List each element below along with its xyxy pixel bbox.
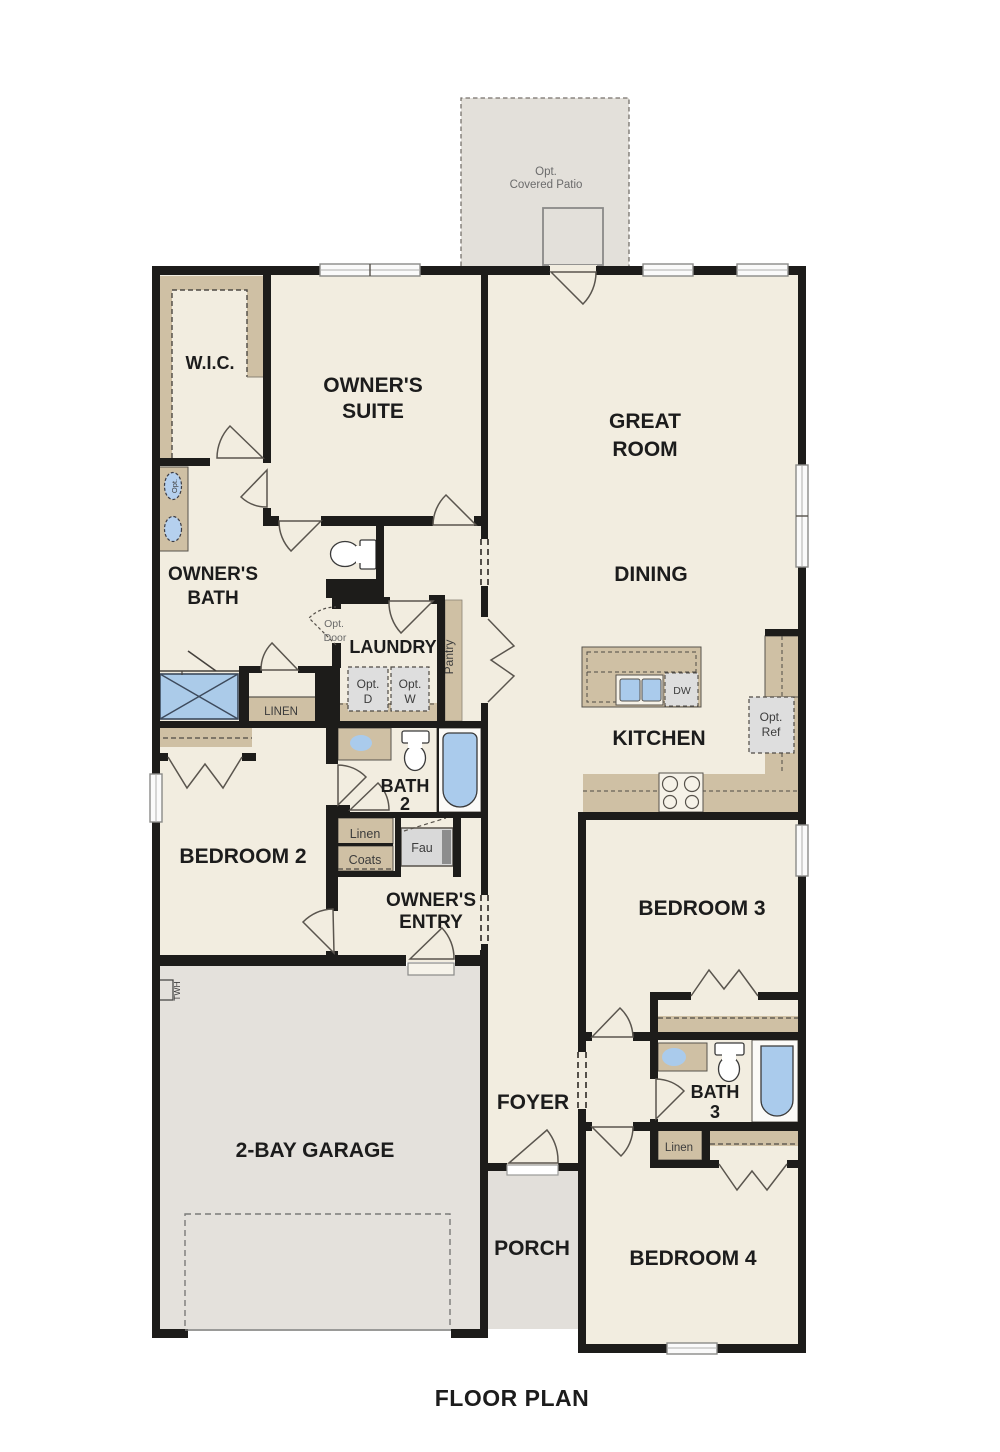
svg-text:Covered Patio: Covered Patio	[510, 179, 583, 191]
svg-text:BEDROOM 3: BEDROOM 3	[638, 897, 765, 920]
svg-text:Opt.: Opt.	[399, 677, 422, 691]
svg-text:ROOM: ROOM	[612, 438, 677, 461]
svg-text:GREAT: GREAT	[609, 410, 681, 433]
svg-text:DINING: DINING	[614, 563, 688, 586]
svg-text:Fau: Fau	[411, 841, 433, 855]
svg-text:LAUNDRY: LAUNDRY	[349, 637, 436, 657]
svg-text:2-BAY GARAGE: 2-BAY GARAGE	[236, 1139, 395, 1162]
svg-text:BEDROOM 4: BEDROOM 4	[629, 1247, 757, 1270]
svg-text:FOYER: FOYER	[497, 1091, 569, 1114]
svg-text:BATH: BATH	[691, 1082, 740, 1102]
svg-text:Ref: Ref	[762, 725, 781, 739]
svg-text:3: 3	[710, 1102, 720, 1122]
svg-text:DW: DW	[673, 685, 691, 697]
svg-text:W: W	[404, 692, 416, 706]
svg-text:ENTRY: ENTRY	[399, 912, 463, 933]
svg-text:Door: Door	[324, 632, 347, 644]
svg-text:OWNER'S: OWNER'S	[386, 890, 476, 911]
svg-text:Linen: Linen	[665, 1142, 693, 1154]
svg-text:Opt.: Opt.	[357, 677, 380, 691]
svg-text:BEDROOM 2: BEDROOM 2	[179, 845, 306, 868]
svg-text:Coats: Coats	[349, 853, 382, 867]
svg-text:W.I.C.: W.I.C.	[186, 353, 235, 373]
svg-text:KITCHEN: KITCHEN	[612, 727, 705, 750]
svg-text:SUITE: SUITE	[342, 400, 404, 423]
svg-text:Opt.: Opt.	[760, 710, 783, 724]
svg-text:Opt.: Opt.	[170, 479, 179, 493]
svg-text:PORCH: PORCH	[494, 1237, 570, 1260]
svg-text:BATH: BATH	[381, 776, 430, 796]
svg-text:Opt.: Opt.	[535, 166, 557, 178]
svg-text:LINEN: LINEN	[264, 706, 298, 718]
svg-text:2: 2	[400, 794, 410, 814]
svg-text:BATH: BATH	[187, 588, 238, 609]
svg-text:Opt.: Opt.	[324, 618, 344, 630]
svg-text:D: D	[364, 692, 373, 706]
svg-text:OWNER'S: OWNER'S	[323, 374, 423, 397]
svg-text:OWNER'S: OWNER'S	[168, 564, 258, 585]
svg-text:TWH: TWH	[172, 981, 182, 1000]
svg-text:Linen: Linen	[350, 827, 381, 841]
svg-text:FLOOR PLAN: FLOOR PLAN	[435, 1385, 590, 1411]
